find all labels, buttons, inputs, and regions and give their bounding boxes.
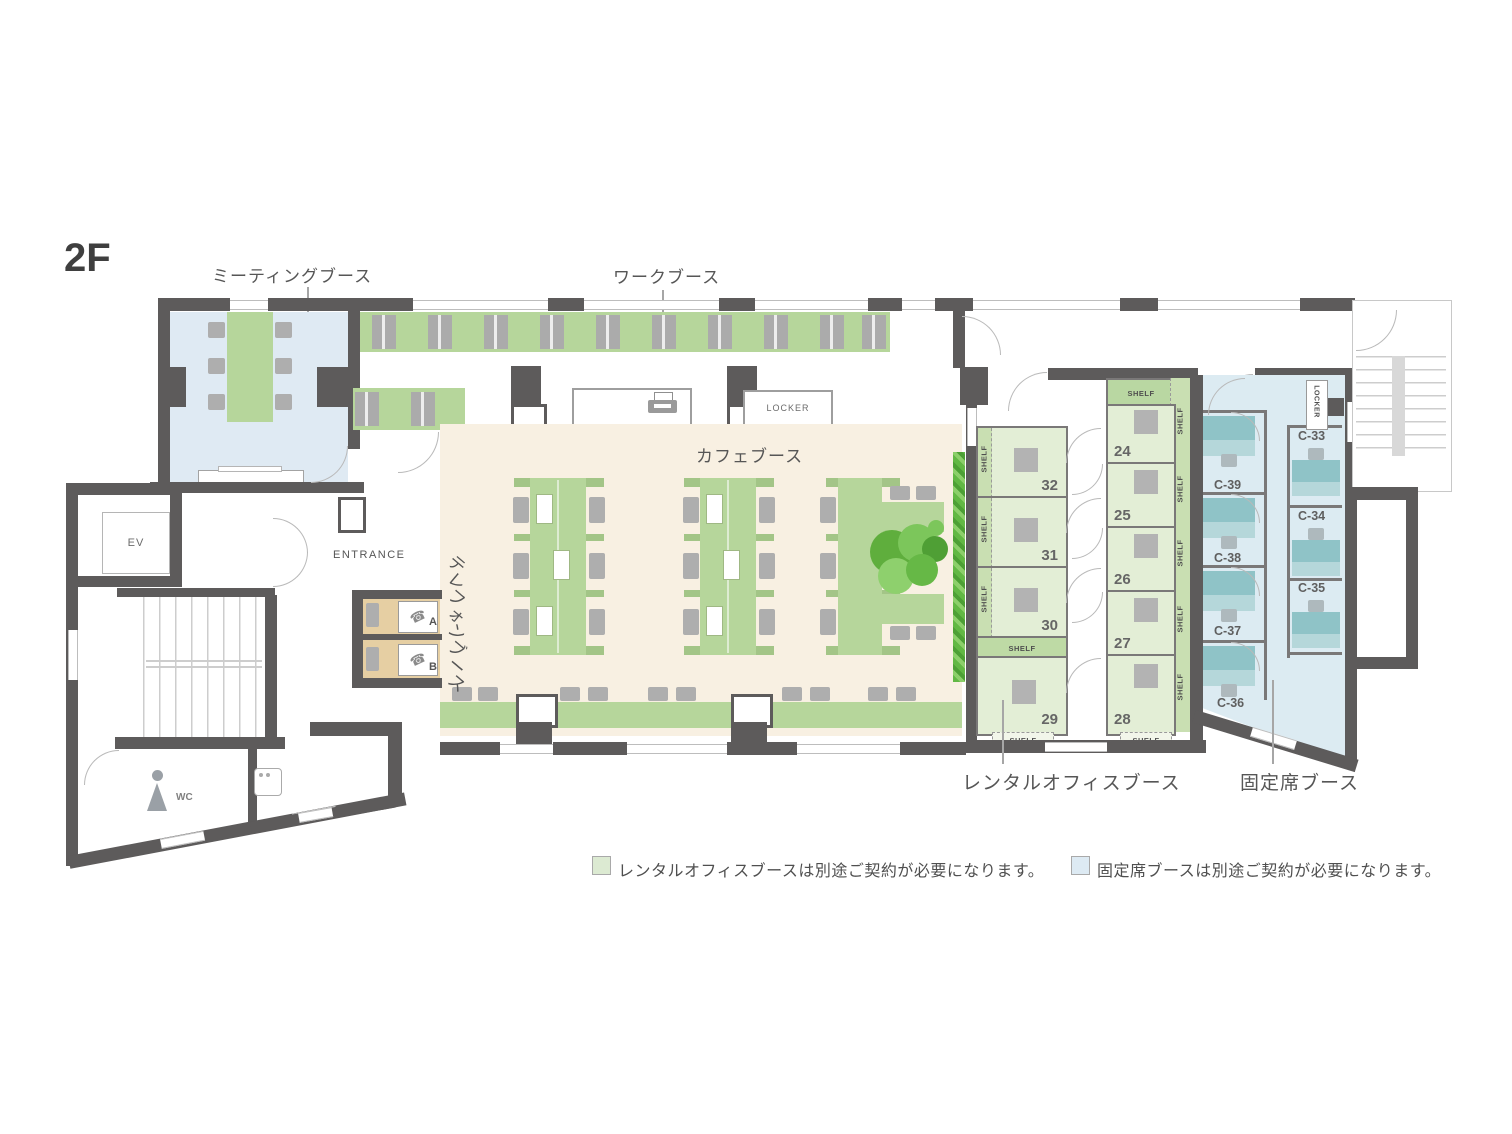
printer-icon: [648, 392, 678, 418]
counter-ledge: [218, 466, 282, 472]
laptop: [706, 494, 723, 524]
chair-pair: [652, 315, 678, 349]
partition: [1287, 505, 1342, 508]
chair: [588, 687, 608, 701]
fixed-booth-label: C-36: [1217, 696, 1244, 710]
wall-segment: [1406, 487, 1418, 669]
wall-segment: [440, 742, 500, 755]
booth-number: 30: [1041, 617, 1058, 634]
chair-pair: [764, 315, 790, 349]
leader-line: [1272, 680, 1274, 764]
phone-booth-b-label: B: [429, 661, 437, 673]
chair: [366, 647, 379, 671]
pillar-box: [338, 497, 366, 533]
wall-pillar: [158, 367, 186, 407]
chair: [589, 553, 605, 579]
ev-label: EV: [128, 537, 145, 549]
phone-icon: ☎: [407, 649, 428, 670]
booth-31: SHELF 31: [976, 496, 1068, 570]
booth-27: 27: [1106, 590, 1176, 658]
window: [1045, 742, 1107, 752]
booth-number: 31: [1041, 547, 1058, 564]
door-arc: [962, 316, 1001, 355]
door-arc: [1072, 528, 1103, 559]
wall-segment: [553, 742, 627, 755]
phone-booth-a-label: A: [429, 616, 437, 628]
legend-swatch-rental: [592, 856, 611, 875]
stair-landing-line: [146, 660, 262, 662]
chair: [916, 486, 936, 500]
fixed-booth-label: C-35: [1298, 581, 1325, 595]
floor-plan: 2F ミーティングブース ワークブース: [0, 0, 1512, 1134]
chair: [208, 358, 225, 374]
fixed-booth-label: C-39: [1214, 478, 1241, 492]
chair: [782, 687, 802, 701]
label-phone-booth: テレフォンブース: [447, 556, 466, 692]
meeting-table: [227, 312, 273, 422]
shelf-label: SHELF: [980, 519, 989, 543]
chair: [589, 497, 605, 523]
chair: [208, 394, 225, 410]
chair: [890, 626, 910, 640]
chair-pair: [596, 315, 622, 349]
wall-segment: [150, 482, 364, 493]
wc-female-icon: [146, 770, 170, 814]
booth-number: 29: [1041, 711, 1058, 728]
fixed-booth-label: C-37: [1214, 624, 1241, 638]
chair: [759, 609, 775, 635]
side-table: [882, 594, 944, 624]
desk: [1134, 534, 1158, 558]
chair: [820, 553, 836, 579]
chair-pair: [372, 315, 398, 349]
chair: [676, 687, 696, 701]
desk: [1134, 598, 1158, 622]
laptop: [723, 550, 740, 580]
wall-segment: [719, 298, 755, 311]
wall-segment: [548, 298, 584, 311]
chair: [820, 497, 836, 523]
booth-24: 24: [1106, 404, 1176, 466]
chair: [513, 553, 529, 579]
booth-number: 24: [1114, 443, 1131, 460]
chair: [513, 497, 529, 523]
booth-number: 32: [1041, 477, 1058, 494]
shelf-label: SHELF: [1176, 543, 1185, 567]
shelf-label: SHELF: [1176, 411, 1185, 435]
chair: [759, 497, 775, 523]
chair: [560, 687, 580, 701]
legend-swatch-fixed: [1071, 856, 1090, 875]
legend-text-rental: レンタルオフィスブースは別途ご契約が必要になります。: [618, 857, 1044, 881]
desk: [1134, 664, 1158, 688]
desk: [1014, 518, 1038, 542]
locker-label: LOCKER: [1313, 380, 1320, 424]
locker-label: LOCKER: [766, 403, 809, 413]
wall-segment: [268, 298, 413, 311]
door-arc: [398, 432, 439, 473]
wall-segment: [727, 742, 797, 755]
chair: [890, 486, 910, 500]
wall-segment: [66, 483, 182, 495]
chair: [820, 609, 836, 635]
wall-pillar: [317, 367, 348, 407]
door-arc: [1066, 658, 1101, 693]
chair-pair: [355, 392, 381, 426]
chair: [916, 626, 936, 640]
fixed-booth-label: C-34: [1298, 509, 1325, 523]
fixed-desk: [1292, 600, 1340, 648]
laptop: [536, 606, 553, 636]
entrance-label: ENTRANCE: [333, 549, 406, 561]
chair: [513, 609, 529, 635]
chair-pair: [862, 315, 888, 349]
partition: [1287, 652, 1342, 655]
phone-icon: ☎: [407, 606, 428, 627]
chair: [366, 603, 379, 627]
laptop: [536, 494, 553, 524]
door-arc: [1066, 428, 1101, 463]
chair-pair: [540, 315, 566, 349]
desk: [1014, 588, 1038, 612]
shelf-label: SHELF: [1008, 644, 1035, 653]
chair: [683, 553, 699, 579]
wall-segment: [352, 590, 442, 599]
shelf-label: SHELF: [1176, 609, 1185, 633]
wall-segment: [868, 298, 902, 311]
chair: [896, 687, 916, 701]
leader-line: [1002, 700, 1004, 764]
wall-segment: [66, 576, 182, 587]
door-arc: [1072, 592, 1103, 623]
label-meeting-booth: ミーティングブース: [212, 262, 372, 287]
rental-left-column: SHELF 32 SHELF 31 SHELF 30 SHELF 29: [976, 420, 1064, 732]
label-rental-booth: レンタルオフィスブース: [962, 768, 1181, 795]
wall-segment: [1190, 375, 1203, 747]
wc-label: WC: [176, 792, 193, 803]
chair-pair: [820, 315, 846, 349]
chair: [683, 497, 699, 523]
chair: [275, 394, 292, 410]
window: [440, 744, 964, 754]
chair: [208, 322, 225, 338]
chair: [275, 322, 292, 338]
chair-pair: [708, 315, 734, 349]
laptop: [706, 606, 723, 636]
stair-divider: [1392, 356, 1405, 456]
shelf-label: SHELF: [1127, 389, 1154, 398]
shelf-label: SHELF: [980, 589, 989, 613]
legend-text-fixed: 固定席ブースは別途ご契約が必要になります。: [1097, 857, 1441, 881]
door-arc: [273, 552, 308, 587]
chair: [810, 687, 830, 701]
fixed-desk: [1292, 448, 1340, 496]
chair: [759, 553, 775, 579]
partition: [1287, 425, 1290, 658]
plant-wall: [953, 452, 965, 682]
floor-label: 2F: [64, 236, 111, 281]
booth-number: 26: [1114, 571, 1131, 588]
booth-number: 25: [1114, 507, 1131, 524]
chair: [589, 609, 605, 635]
door-arc: [84, 750, 119, 785]
fixed-booth-label: C-38: [1214, 551, 1241, 565]
desk: [1134, 470, 1158, 494]
shelf-label: SHELF: [980, 449, 989, 473]
door-arc: [1008, 372, 1047, 411]
wall-segment: [265, 595, 277, 740]
booth-number: 28: [1114, 711, 1131, 728]
wall-pillar: [960, 367, 988, 405]
desk: [1014, 448, 1038, 472]
wall-segment: [352, 678, 442, 688]
shelf-label: SHELF: [1176, 479, 1185, 503]
wall-segment: [117, 588, 275, 597]
chair-pair: [428, 315, 454, 349]
booth-25: 25: [1106, 462, 1176, 530]
wall-segment: [1120, 298, 1158, 311]
chair-pair: [411, 392, 437, 426]
desk: [1012, 680, 1036, 704]
pillar: [511, 366, 541, 404]
wall-segment: [900, 742, 966, 755]
window: [68, 630, 78, 680]
fixed-desk: [1292, 528, 1340, 576]
chair: [868, 687, 888, 701]
chair: [478, 687, 498, 701]
fixed-booth-label: C-33: [1298, 429, 1325, 443]
booth-28: 28: [1106, 654, 1176, 736]
rental-right-column: SHELF SHELF SHELF SHELF SHELF SHELF 24 2…: [1106, 378, 1190, 732]
wall-pillar: [1328, 398, 1344, 416]
wall-segment: [1352, 657, 1418, 669]
wall-segment: [115, 737, 285, 749]
chair: [275, 358, 292, 374]
booth-30: SHELF 30: [976, 566, 1068, 640]
label-fixed-booth: 固定席ブース: [1240, 768, 1359, 795]
wall-segment: [1300, 298, 1355, 311]
laptop: [553, 550, 570, 580]
partition: [1264, 410, 1267, 700]
shelf-label: SHELF: [1176, 677, 1185, 701]
label-work-booth: ワークブース: [613, 263, 720, 288]
wall-segment: [388, 730, 402, 800]
chair-pair: [484, 315, 510, 349]
booth-29: 29: [976, 656, 1068, 736]
wall-segment: [170, 483, 182, 587]
locker-cabinet: LOCKER: [743, 390, 833, 426]
door-arc: [1072, 464, 1103, 495]
door-arc: [273, 518, 308, 553]
wall-segment: [310, 722, 402, 736]
elevator: EV: [102, 512, 170, 574]
label-cafe-booth: カフェブース: [696, 442, 803, 467]
desk: [1134, 410, 1158, 434]
booth-32: SHELF 32: [976, 426, 1068, 500]
chair: [648, 687, 668, 701]
chair: [683, 609, 699, 635]
sink: [254, 768, 282, 796]
booth-number: 27: [1114, 635, 1131, 652]
booth-26: 26: [1106, 526, 1176, 594]
stair-landing-line: [146, 666, 262, 668]
